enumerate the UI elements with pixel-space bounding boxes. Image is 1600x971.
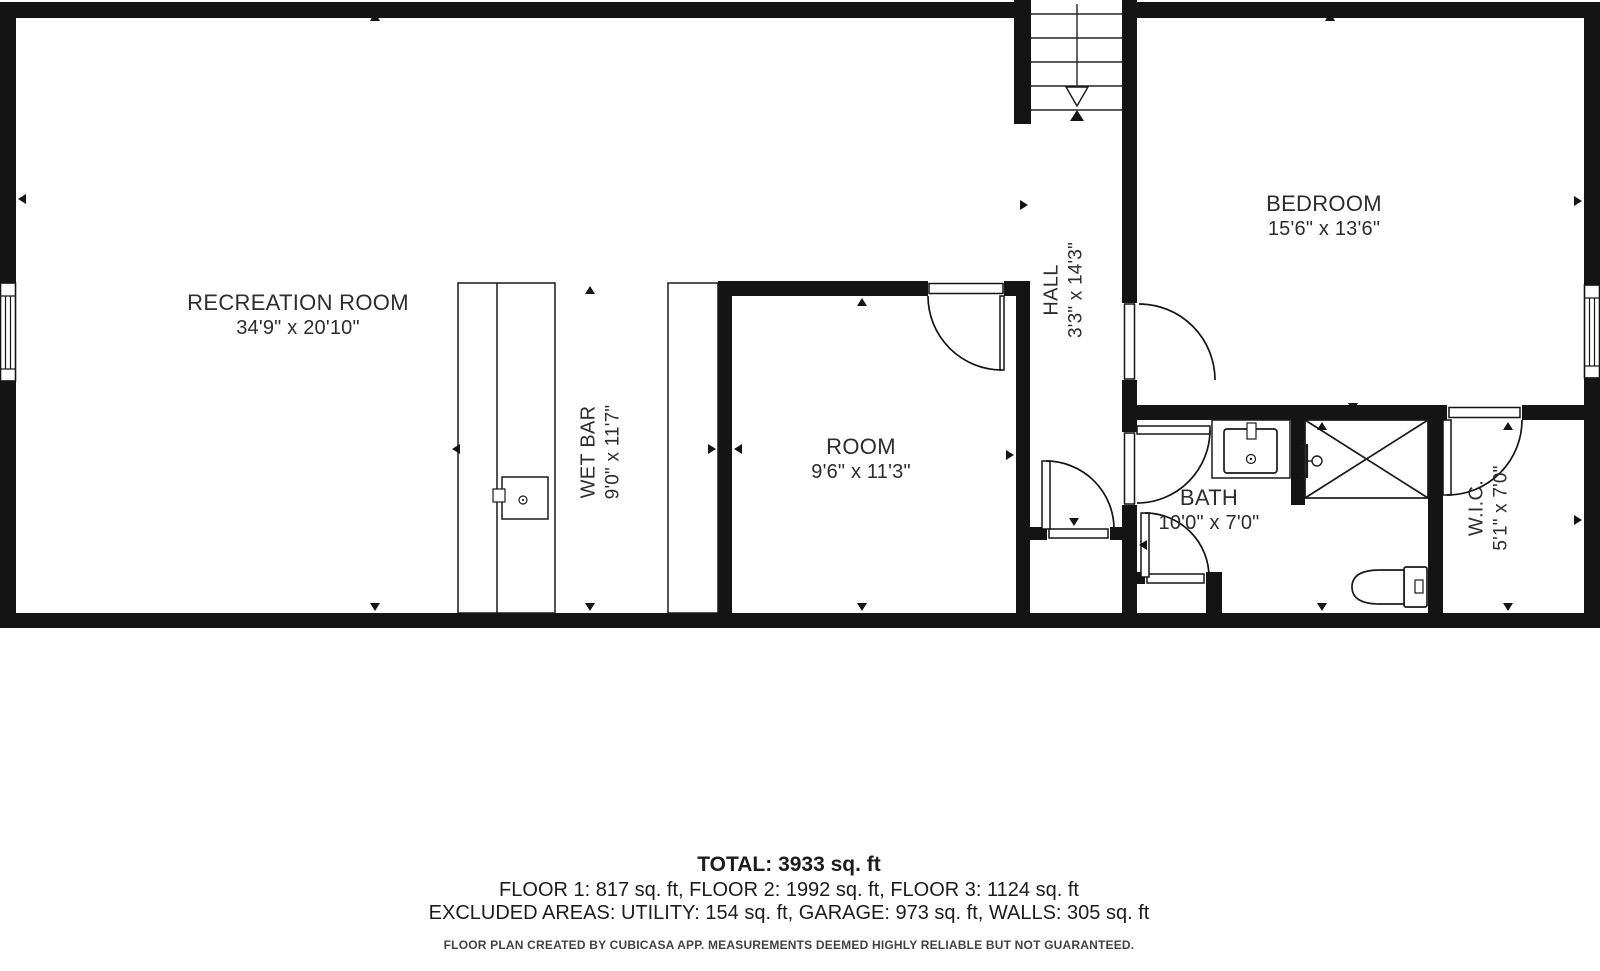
floor-plan-drawing [0, 0, 1600, 971]
room-dims: 15'6" x 13'6" [1266, 217, 1382, 242]
wall-bedroom-left-b [1122, 380, 1137, 405]
wall-bedroom-left-a [1122, 0, 1137, 303]
label-room: ROOM 9'6" x 11'3" [811, 433, 910, 485]
wall-bath-wic [1428, 420, 1443, 613]
room-name: RECREATION ROOM [187, 289, 409, 316]
label-wet-bar: WET BAR 9'0" x 11'7" [577, 405, 626, 500]
floor-areas-text: FLOOR 1: 817 sq. ft, FLOOR 2: 1992 sq. f… [0, 879, 1578, 902]
wall-room-left [718, 281, 732, 613]
room-name: WET BAR [577, 405, 602, 500]
wall-nook-b [1206, 572, 1222, 613]
room-dims: 9'0" x 11'7" [602, 405, 626, 500]
room-name: BEDROOM [1266, 190, 1382, 217]
room-dims: 5'1" x 7'0" [1490, 465, 1514, 550]
window-left-icon [1, 283, 16, 381]
stairs-down-arrowhead-icon [1066, 87, 1088, 106]
wall-shower-left [1291, 420, 1305, 505]
hall-door-swing-icon [1042, 461, 1114, 538]
excluded-areas-text: EXCLUDED AREAS: UTILITY: 154 sq. ft, GAR… [0, 902, 1578, 925]
toilet-icon [1352, 567, 1427, 607]
wall-room-top-a [718, 281, 928, 296]
wet-bar-sink-icon [493, 477, 548, 519]
window-right-icon [1585, 285, 1600, 378]
label-hall: HALL 3'3" x 14'3" [1040, 242, 1089, 338]
floor-plan-page: RECREATION ROOM 34'9" x 20'10" WET BAR 9… [0, 0, 1600, 971]
wall-top-right [1122, 2, 1600, 18]
wall-bottom [0, 613, 1600, 628]
wall-bath-left-b [1122, 505, 1137, 613]
wall-bedroom-bottom-a [1122, 405, 1447, 420]
room-name: HALL [1040, 242, 1065, 338]
label-bath: BATH 10'0" x 7'0" [1159, 484, 1260, 536]
wall-stair-left [1014, 0, 1031, 124]
wet-bar-counter-left [458, 283, 555, 613]
bath-sink-icon [1212, 420, 1290, 478]
shower-icon [1300, 420, 1428, 498]
label-bedroom: BEDROOM 15'6" x 13'6" [1266, 190, 1382, 242]
label-recreation-room: RECREATION ROOM 34'9" x 20'10" [187, 289, 409, 341]
room-dims: 9'6" x 11'3" [811, 460, 910, 485]
wall-hall-bottom-b [1110, 527, 1122, 540]
label-wic: W.I.C. 5'1" x 7'0" [1465, 465, 1514, 550]
stairs-base-marker-icon [1070, 110, 1084, 121]
room-name: W.I.C. [1465, 465, 1490, 550]
wall-bath-left-a [1122, 420, 1137, 432]
total-area-text: TOTAL: 3933 sq. ft [0, 853, 1578, 877]
wall-top-left [0, 2, 1031, 18]
room-dims: 3'3" x 14'3" [1065, 242, 1089, 338]
bedroom-door-swing-icon [1125, 304, 1216, 380]
room-name: BATH [1159, 484, 1260, 511]
room-dims: 10'0" x 7'0" [1159, 511, 1260, 536]
room-dims: 34'9" x 20'10" [187, 316, 409, 341]
disclaimer-text: FLOOR PLAN CREATED BY CUBICASA APP. MEAS… [0, 938, 1578, 952]
room-door-swing-icon [928, 284, 1004, 371]
room-name: ROOM [811, 433, 910, 460]
stairs-icon [1031, 4, 1122, 121]
wall-room-right [1016, 281, 1030, 613]
wall-bedroom-bottom-b [1522, 405, 1600, 420]
